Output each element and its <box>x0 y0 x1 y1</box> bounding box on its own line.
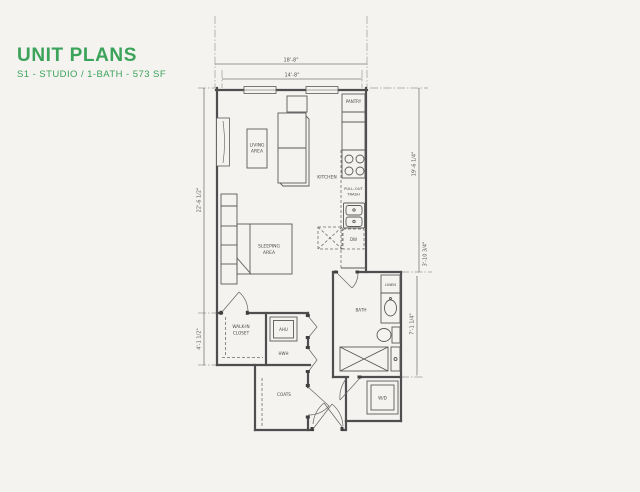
room-label-walk-in-closet: WALK-IN CLOSET <box>232 324 249 336</box>
label-linen: LINEN <box>385 282 396 287</box>
dim-top-outer: 18'-8" <box>283 58 298 64</box>
label-pantry: PANTRY <box>346 99 362 104</box>
dim-bath-wall: 7'-1 1/4" <box>410 313 416 334</box>
closet-label-line1: WALK-IN <box>232 324 249 329</box>
stove <box>342 150 365 178</box>
wardrobe <box>221 194 237 284</box>
closet-label-line2: CLOSET <box>233 331 250 336</box>
dim-left-lower: 4'-1 1/2" <box>197 328 203 349</box>
washer-door <box>340 378 360 400</box>
label-ahu: AHU <box>279 327 288 332</box>
room-label-living: LIVING AREA <box>249 143 265 155</box>
dim-right-step: 3'-10 3/4" <box>423 242 429 267</box>
living-label-line1: LIVING <box>249 143 265 149</box>
bath-vanity <box>381 293 400 323</box>
trash-label-line2: TRASH <box>346 192 360 197</box>
windows <box>217 87 339 167</box>
title-block: UNIT PLANS S1 - STUDIO / 1-BATH - 573 SF <box>17 46 166 80</box>
sofa <box>278 113 309 186</box>
room-label-bath: BATH <box>355 308 366 313</box>
room-label-sleeping: SLEEPING AREA <box>258 244 280 257</box>
side-table <box>287 96 307 112</box>
living-area-rug <box>247 129 267 168</box>
sleeping-label-line1: SLEEPING <box>258 244 280 250</box>
refrigerator <box>342 122 365 150</box>
label-pull-out-trash: PULL-OUT TRASH <box>344 186 363 197</box>
page-title: UNIT PLANS <box>17 46 166 66</box>
dim-top-inner: 14'-8" <box>284 73 299 79</box>
label-washer-dryer: W/D <box>378 396 387 401</box>
unit-subtitle: S1 - STUDIO / 1-BATH - 573 SF <box>17 69 166 80</box>
bath-door <box>337 273 358 288</box>
walls <box>216 88 401 430</box>
label-coats: COATS <box>277 392 291 397</box>
doors <box>222 273 360 429</box>
kitchen-sink <box>344 203 365 228</box>
bathtub <box>340 347 400 371</box>
window-top-left <box>244 87 276 94</box>
window-top-right <box>306 87 338 94</box>
trash-label-line1: PULL-OUT <box>344 186 363 191</box>
unit-plan-sheet: UNIT PLANS S1 - STUDIO / 1-BATH - 573 SF <box>0 0 640 492</box>
label-dishwasher: DW <box>350 237 357 242</box>
room-label-kitchen: KITCHEN <box>317 175 337 181</box>
sleeping-label-line2: AREA <box>263 250 276 256</box>
dim-right-upper: 19'-6 1/4" <box>412 152 418 177</box>
coats-door <box>308 387 329 415</box>
dashed-details <box>222 150 364 428</box>
dim-left-upper: 22'-6 1/2" <box>197 188 203 213</box>
hwh-bifold-door <box>308 348 317 372</box>
toilet <box>377 327 400 343</box>
label-hwh: HWH <box>279 351 289 356</box>
ahu-bifold-door <box>308 316 317 338</box>
optional-island <box>318 227 342 249</box>
living-label-line2: AREA <box>251 149 264 155</box>
walk-in-closet-door <box>222 292 248 312</box>
window-living-left <box>217 118 230 166</box>
